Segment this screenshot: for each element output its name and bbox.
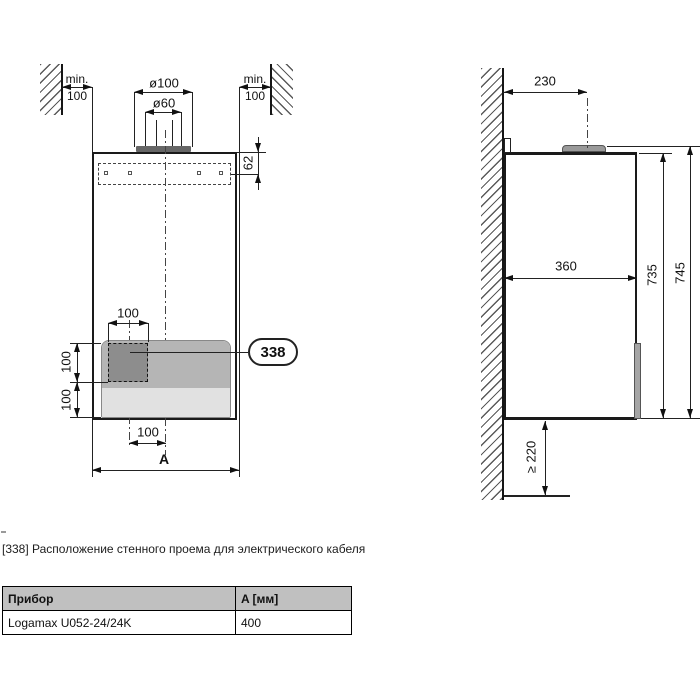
spec-table: Прибор A [мм] Logamax U052-24/24K 400 (2, 586, 352, 635)
table-row: Logamax U052-24/24K 400 (3, 611, 352, 635)
bracket-hole (104, 171, 108, 175)
flue-collar (562, 145, 606, 152)
flue-centerline (587, 98, 588, 148)
dim-label: 100 (245, 90, 265, 102)
table-header-row: Прибор A [мм] (3, 587, 352, 611)
panel-lower-band (102, 388, 231, 418)
dim-label: ø100 (149, 77, 179, 90)
dim-label: 62 (242, 156, 255, 170)
dim-label: ≥ 220 (525, 441, 538, 473)
dim-label: ø60 (153, 97, 175, 110)
dim-label: min. (244, 73, 267, 85)
text-fragment (1, 531, 6, 533)
bracket-hole (197, 171, 201, 175)
table-cell-a-value: 400 (236, 611, 352, 635)
dim-label: 745 (674, 262, 687, 284)
dim-label: 100 (60, 351, 73, 373)
table-header-a-mm: A [мм] (236, 587, 352, 611)
cable-opening (108, 343, 148, 382)
callout-label: 338 (260, 344, 285, 361)
callout-338: 338 (248, 338, 298, 366)
callout-leader (130, 352, 248, 353)
dim-label: 735 (646, 264, 659, 286)
dim-label: 230 (534, 75, 556, 88)
boiler-side-outline (504, 152, 637, 420)
bracket-hole (219, 171, 223, 175)
dim-label: 100 (60, 389, 73, 411)
flue-flange (136, 146, 191, 152)
bracket-hole (128, 171, 132, 175)
dim-label: A (159, 452, 169, 466)
dim-label: 100 (117, 307, 139, 320)
dim-label: 360 (555, 260, 577, 273)
side-panel-strip (634, 343, 641, 419)
dim-label: 100 (137, 426, 159, 439)
dim-label: min. (66, 73, 89, 85)
dim-label: 100 (67, 90, 87, 102)
installation-drawing: 338 min. 100 min. 100 ø100 (0, 0, 700, 700)
table-header-device: Прибор (3, 587, 236, 611)
mounting-bracket (504, 138, 511, 153)
table-cell-device: Logamax U052-24/24K (3, 611, 236, 635)
figure-caption: [338] Расположение стенного проема для э… (2, 542, 365, 556)
